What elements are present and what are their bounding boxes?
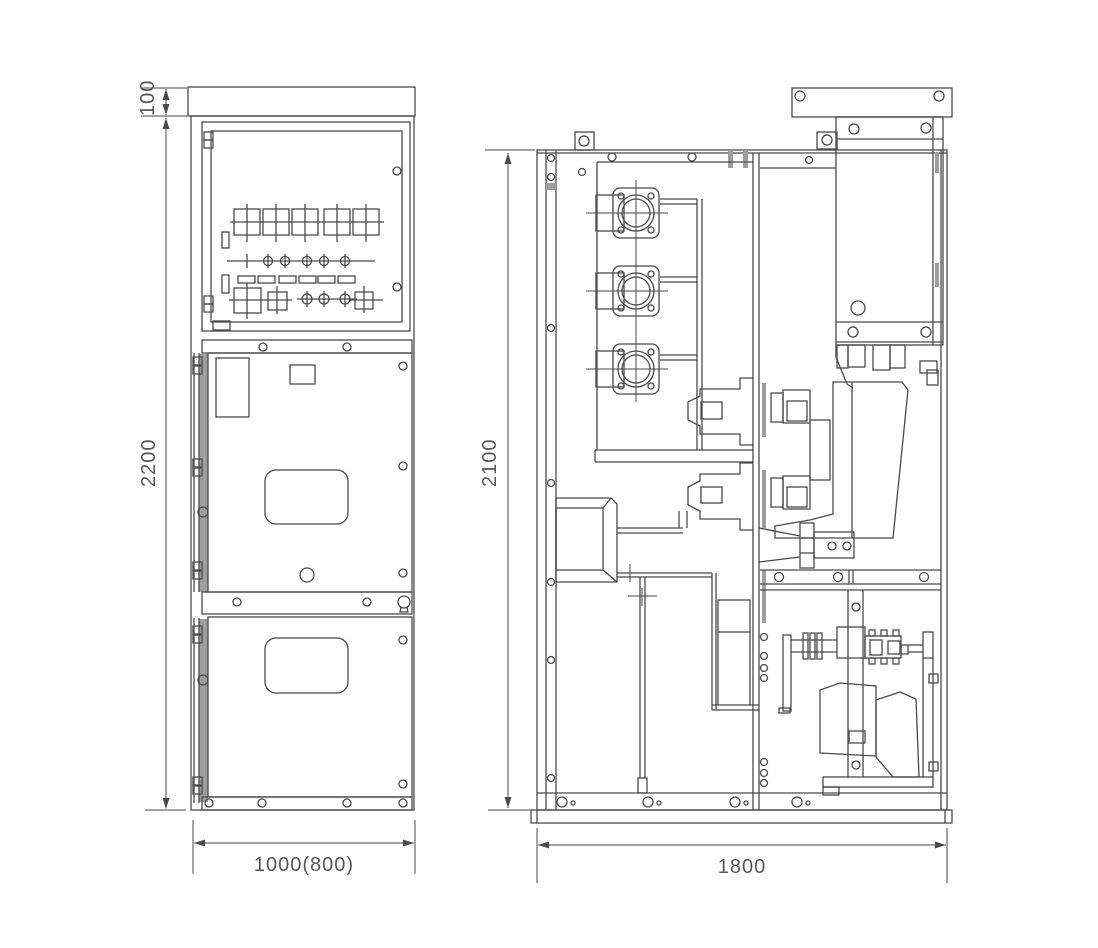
front-view: 100 2200 1000(800) [137,80,415,876]
technical-drawing: 100 2200 1000(800) [0,0,1098,948]
support-insulator [718,600,750,632]
ct-box [556,498,617,582]
front-bottom-door [193,617,412,810]
front-cap [188,87,415,116]
switch-row [229,283,383,319]
earthing-switch-shaft [779,627,933,713]
bushing [586,188,697,238]
side-breaker [759,382,908,568]
dim-label-top-cap: 100 [137,80,159,116]
bushing [586,266,697,316]
front-body [191,116,414,810]
lifting-lug [575,132,594,150]
dim-label-side-depth: 1800 [718,856,767,878]
front-dimensions: 100 2200 1000(800) [137,80,415,876]
side-dimensions: 2100 1800 [479,150,947,883]
label-strip-row [238,276,355,283]
dim-label-side-height: 2100 [479,439,501,488]
dim-label-front-height: 2200 [138,439,160,488]
base-mounting-holes [557,797,810,807]
side-mechanism [760,570,941,795]
side-lv-box [792,88,952,388]
side-cable-compartment [556,498,759,793]
linkage-plate [876,692,919,777]
front-panel-components [222,204,384,319]
front-middle-door [193,340,412,614]
indicator-row [234,204,379,242]
keyhole-icon [398,596,410,612]
side-view: 2100 1800 [479,88,952,883]
bushing [586,344,697,394]
dim-label-front-width: 1000(800) [254,854,354,876]
side-bushings [586,162,753,530]
side-frame [531,132,952,823]
contact-spout [688,463,753,530]
drawing-canvas: 100 2200 1000(800) [0,0,1098,948]
contact-spout [688,378,753,445]
